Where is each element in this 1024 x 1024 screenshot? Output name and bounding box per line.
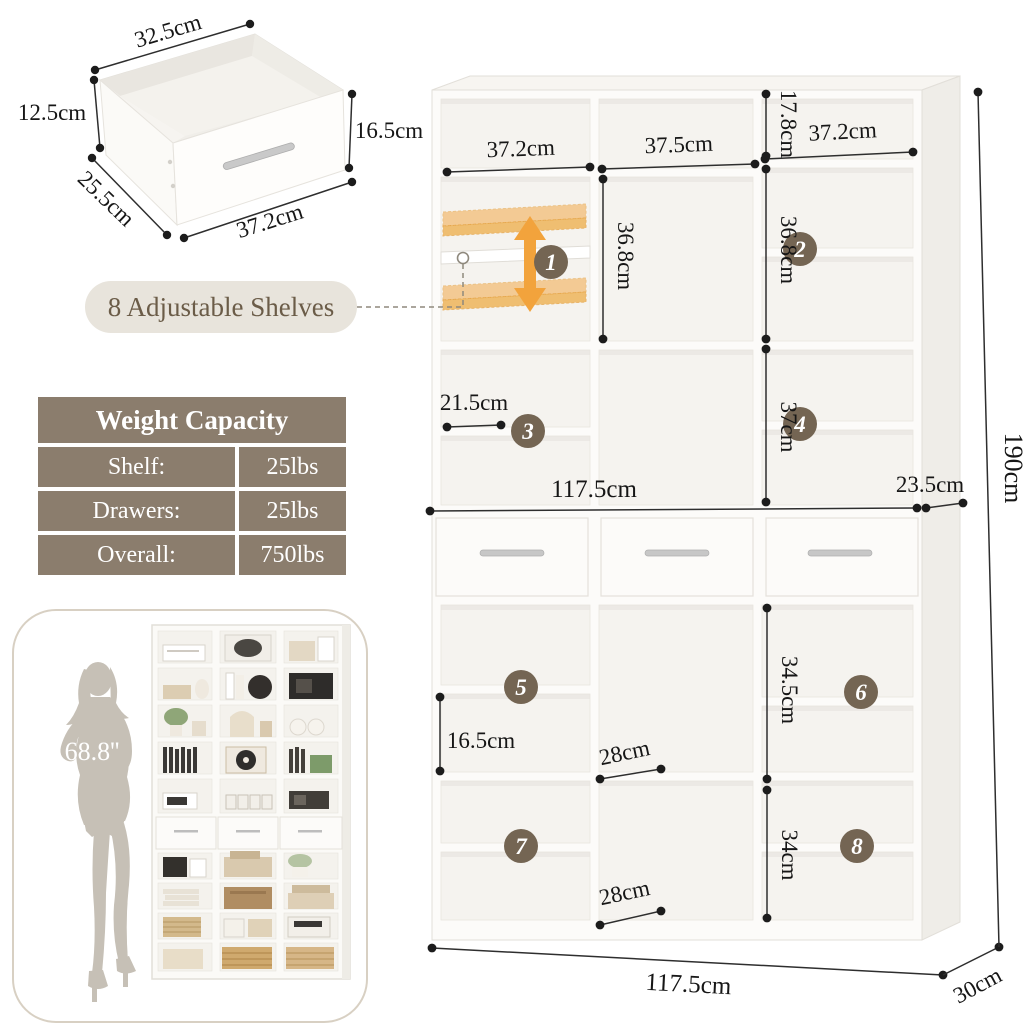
svg-text:3: 3	[521, 419, 534, 444]
weight-row-label: Drawers:	[38, 491, 235, 531]
shelf-badge-8: 8	[840, 829, 874, 863]
weight-row-label: Shelf:	[38, 447, 235, 487]
bookshelf-photo	[150, 621, 360, 993]
drawer-front	[766, 518, 918, 596]
shelf-badge-1: 1	[534, 245, 568, 279]
cabinet-top-face	[432, 76, 960, 90]
drawer-handle	[480, 550, 544, 556]
mini-drawers	[156, 817, 342, 849]
drawer-handle	[808, 550, 872, 556]
hutch-depth-label: 23.5cm	[896, 472, 964, 497]
svg-text:5: 5	[515, 675, 527, 700]
weight-row-value: 25lbs	[239, 447, 346, 487]
hutch-width-label: 117.5cm	[551, 476, 637, 503]
shelf-badge-3: 3	[511, 414, 545, 448]
base-width-label: 117.5cm	[645, 969, 733, 1000]
top-right-height-label: 17.8cm	[776, 90, 801, 158]
base-depth-label: 30cm	[949, 962, 1006, 1008]
col-right-width-label: 37.2cm	[808, 117, 878, 146]
cabinet-illustration: 1 2 3 4 5 6 7 8 37.2cm 37.5cm 37.	[357, 76, 1024, 1008]
weight-table-title: Weight Capacity	[38, 397, 346, 443]
shelf-badge-7: 7	[504, 829, 538, 863]
weight-row-value: 750lbs	[239, 535, 346, 575]
total-height-label: 190cm	[999, 433, 1024, 504]
upper-right-height-label: 36.8cm	[776, 216, 801, 284]
col-left-width-label: 37.2cm	[486, 135, 555, 162]
drawer-top-width-label: 32.5cm	[132, 9, 205, 52]
lower-right-upper-height-label: 34.5cm	[777, 656, 802, 724]
shelf-depth-label: 21.5cm	[440, 390, 508, 415]
right-fourth-height-label: 37cm	[776, 401, 801, 452]
lower-left-height-label: 16.5cm	[447, 728, 515, 753]
drawer-front	[436, 518, 588, 596]
drawer-detail-illustration: 32.5cm 12.5cm 25.5cm 37.2cm 16.5cm	[18, 9, 423, 243]
drawer-front-height-label: 16.5cm	[355, 118, 423, 143]
shelf-badge-5: 5	[504, 670, 538, 704]
callout-anchor-ring	[458, 253, 469, 264]
shelf-badge-6: 6	[844, 675, 878, 709]
weight-capacity-table: Weight Capacity Shelf: 25lbs Drawers: 25…	[38, 397, 346, 575]
drawer-side-height-label: 12.5cm	[18, 100, 86, 125]
adjustable-shelves-label: 8 Adjustable Shelves	[108, 292, 334, 323]
figure-height-label: 68.8''	[65, 737, 120, 766]
cabinet-drawers	[436, 518, 918, 596]
svg-text:1: 1	[545, 250, 557, 275]
product-dimension-diagram: 32.5cm 12.5cm 25.5cm 37.2cm 16.5cm	[0, 0, 1024, 1024]
col-middle-width-label: 37.5cm	[644, 131, 713, 158]
svg-text:8: 8	[851, 834, 863, 859]
lower-cells	[441, 605, 913, 920]
drawer-front-width-label: 37.2cm	[233, 199, 306, 243]
adjustable-shelves-callout: 8 Adjustable Shelves	[85, 281, 357, 333]
weight-row-value: 25lbs	[239, 491, 346, 531]
scale-reference-card: 68.8''	[12, 609, 368, 1023]
lower-right-lower-height-label: 34cm	[777, 829, 802, 880]
svg-text:6: 6	[855, 680, 867, 705]
svg-text:7: 7	[515, 834, 528, 859]
weight-row-label: Overall:	[38, 535, 235, 575]
drawer-front	[601, 518, 753, 596]
drawer-handle	[645, 550, 709, 556]
middle-cell-height-label: 36.8cm	[613, 222, 638, 290]
